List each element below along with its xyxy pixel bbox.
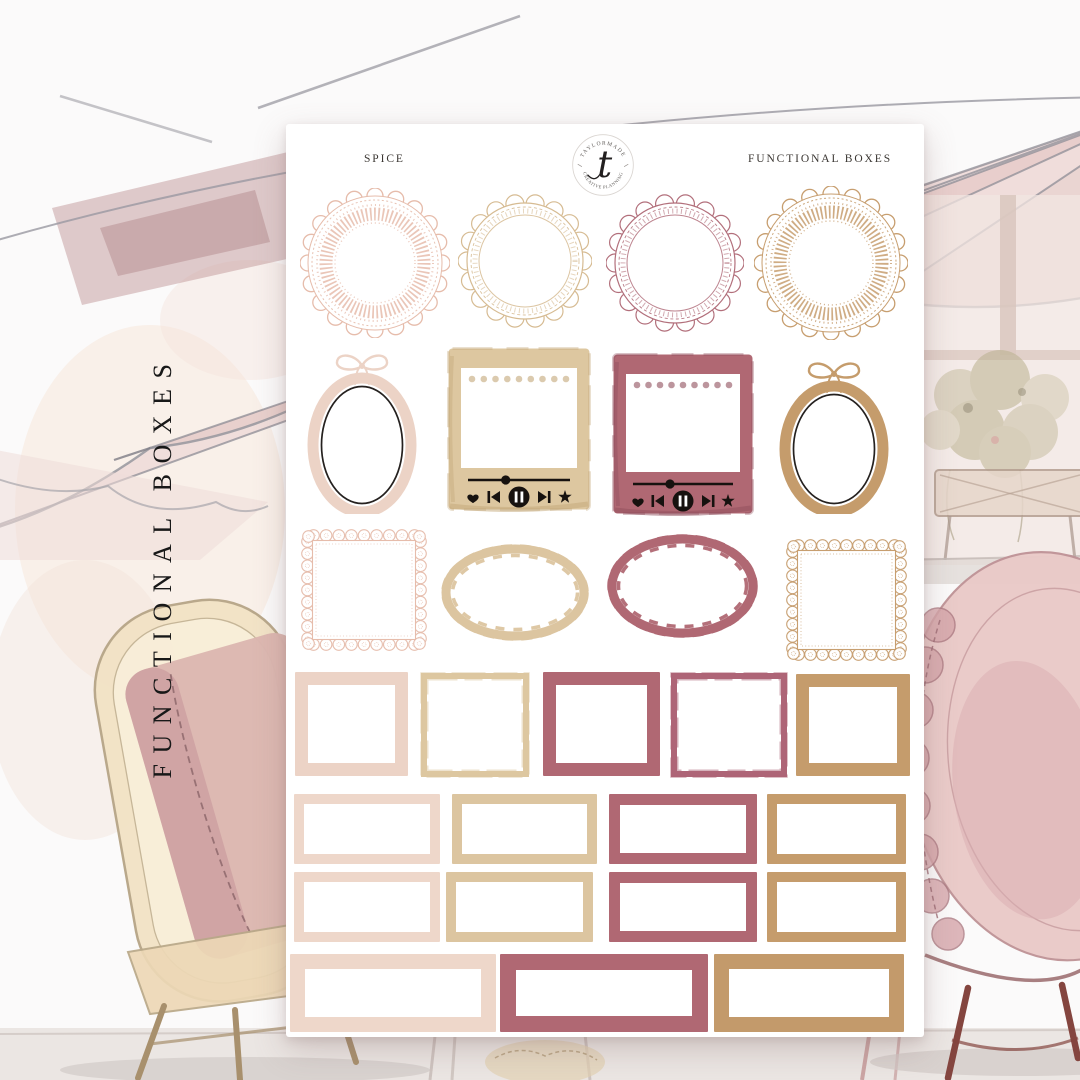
half-box-tan [452, 794, 597, 864]
long-box-mauve [500, 954, 708, 1032]
full-box-camel [796, 674, 910, 776]
half-box-blush [294, 794, 440, 864]
half-box-mauve [609, 794, 757, 864]
oval-bow-frame-blush [306, 346, 418, 514]
sticker-sheet: SPICE TAYLORMADE CREATIVE PLANNING t FUN… [286, 124, 924, 1037]
collection-name: SPICE [364, 153, 405, 165]
half-box-blush-2 [294, 872, 440, 942]
sheet-header: SPICE TAYLORMADE CREATIVE PLANNING t FUN… [286, 124, 924, 224]
vertical-product-title: FUNCTIONAL BOXES [148, 306, 178, 826]
sticker-row-half-boxes-1 [286, 124, 924, 1037]
lace-square-frame-blush [300, 528, 428, 652]
sticker-row-doilies [286, 124, 924, 1037]
music-player-sticker-mauve [611, 352, 755, 516]
full-box-brushstroke-mauve [668, 670, 790, 780]
oval-bow-frame-camel [778, 354, 890, 514]
long-box-blush [290, 954, 496, 1032]
wavy-oval-frame-tan [441, 544, 589, 641]
half-box-mauve-2 [609, 872, 757, 942]
half-box-camel [767, 794, 906, 864]
full-box-brushstroke-cream [418, 670, 532, 780]
sticker-row-full-boxes [286, 124, 924, 1037]
music-player-sticker-cream [446, 346, 592, 512]
sticker-row-long-boxes [286, 124, 924, 1037]
planter-illustration [898, 195, 1080, 584]
long-box-camel [714, 954, 904, 1032]
full-box-blush [295, 672, 408, 776]
full-box-mauve [543, 672, 660, 776]
sticker-row-lace-squares-ovals [286, 124, 924, 1037]
sticker-row-half-boxes-2 [286, 124, 924, 1037]
lace-square-frame-camel [785, 538, 908, 662]
wavy-oval-frame-mauve [607, 534, 758, 638]
logo-monogram: t [597, 143, 612, 186]
product-name: FUNCTIONAL BOXES [748, 153, 892, 165]
half-box-tan-2 [446, 872, 593, 942]
half-box-camel-2 [767, 872, 906, 942]
product-image: FUNCTIONAL BOXES SPICE TAYLORMADE CREATI… [0, 0, 1080, 1080]
sticker-row-oval-frames-players [286, 124, 924, 1037]
taylormade-logo: TAYLORMADE CREATIVE PLANNING t [571, 133, 635, 197]
